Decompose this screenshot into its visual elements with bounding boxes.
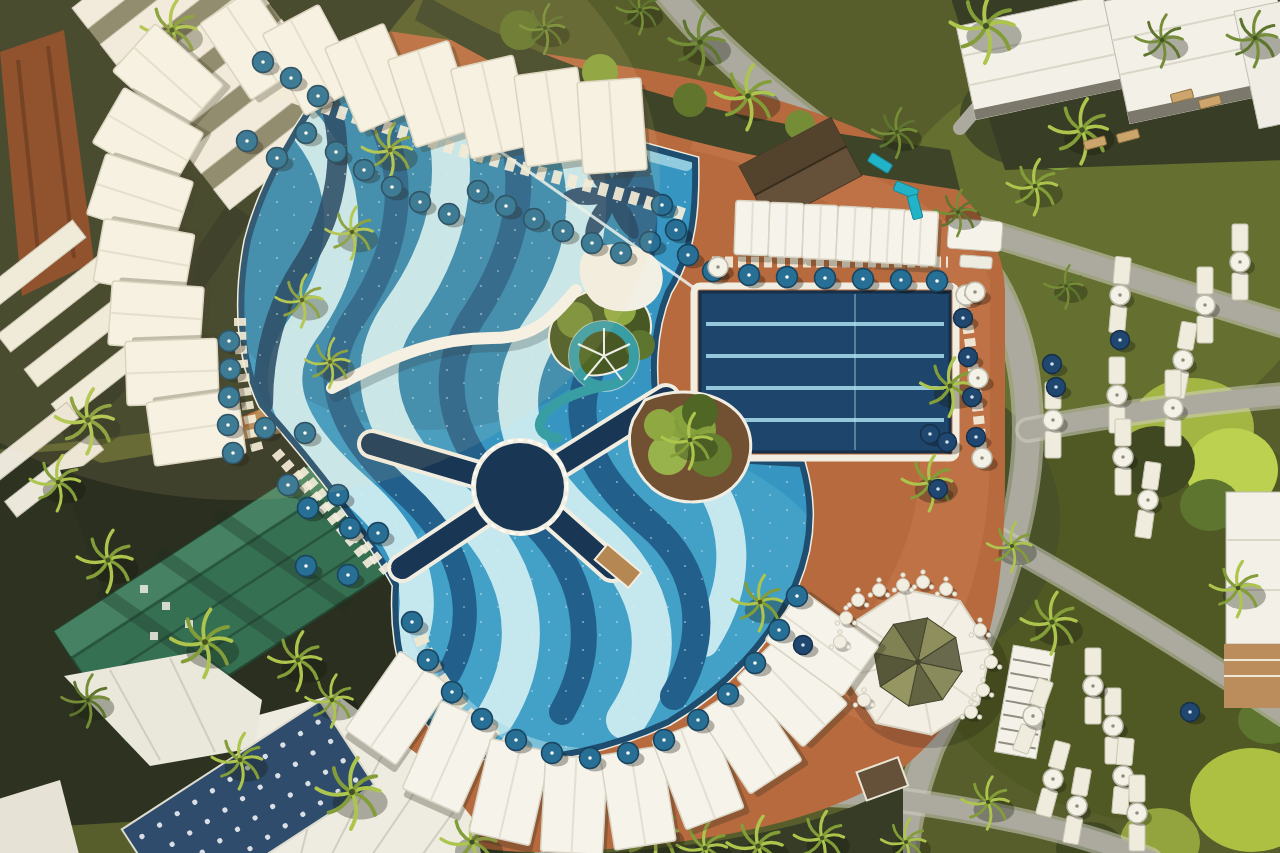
palm-trunk-top <box>300 298 304 302</box>
chair <box>864 603 869 608</box>
table-top <box>840 612 853 625</box>
aerial-resort-photo: Aerial top-down view of a tropical resor… <box>0 0 1280 853</box>
chair <box>846 645 851 650</box>
table-top <box>917 576 930 589</box>
palm-trunk-top <box>703 846 708 851</box>
palm-trunk-top <box>330 698 334 702</box>
parasol-pole <box>231 451 235 455</box>
parasol-pole <box>1050 362 1054 366</box>
sun-lounger <box>1109 357 1125 384</box>
table-top <box>852 594 865 607</box>
parasol-pole <box>662 738 666 742</box>
parasol-pole <box>1121 455 1125 459</box>
palm-trunk-top <box>638 8 642 12</box>
parasol-pole <box>418 200 422 204</box>
chair <box>986 633 991 638</box>
palm-trunk-top <box>1160 38 1164 42</box>
sun-lounger <box>1115 419 1131 446</box>
shade-table <box>162 602 170 610</box>
sun-lounger <box>1142 461 1162 490</box>
parasol-pole <box>336 493 340 497</box>
table-top <box>974 624 987 637</box>
parasol-pole <box>476 189 480 193</box>
sun-lounger <box>1045 431 1061 458</box>
chair <box>838 630 843 635</box>
parasol-pole <box>785 275 789 279</box>
chair <box>885 593 890 598</box>
parasol-pole <box>410 620 414 624</box>
parasol-pole <box>426 658 430 662</box>
sun-lounger <box>1115 468 1131 495</box>
palm-trunk-top <box>328 360 332 364</box>
sun-lounger <box>1197 267 1213 294</box>
chair <box>912 585 917 590</box>
palm-trunk-top <box>983 23 989 29</box>
parasol-pole <box>1111 724 1115 728</box>
parasol-pole <box>686 253 690 257</box>
chair <box>977 715 982 720</box>
palm-trunk-top <box>758 600 763 605</box>
parasol-pole <box>716 265 720 269</box>
parasol-pole <box>1051 418 1055 422</box>
parasol-pole <box>514 738 518 742</box>
parasol-pole <box>316 94 320 98</box>
parasol-pole <box>304 131 308 135</box>
palm-trunk-top <box>202 639 208 645</box>
table-top <box>985 656 998 669</box>
parasol-pole <box>801 643 805 647</box>
palm-trunk-top <box>745 93 750 98</box>
chair <box>852 621 857 626</box>
parasol-pole <box>376 531 380 535</box>
palm-trunk-top <box>86 698 90 702</box>
chair <box>868 593 873 598</box>
chair <box>952 592 957 597</box>
parasol-pole <box>263 426 267 430</box>
parasol-pole <box>823 276 827 280</box>
palm-trunk-top <box>755 843 760 848</box>
sun-lounger <box>1165 419 1181 446</box>
parasol-pole <box>275 156 279 160</box>
parasol-pole <box>980 456 984 460</box>
chair <box>997 665 1002 670</box>
parasol-pole <box>726 692 730 696</box>
chair <box>844 606 849 611</box>
parasol-pole <box>1091 684 1095 688</box>
table-top <box>834 636 847 649</box>
palm-trunk-top <box>895 130 899 134</box>
palm-trunk-top <box>543 26 547 30</box>
sun-lounger <box>1197 316 1213 343</box>
parasol-pole <box>1238 260 1242 264</box>
parasol-pole <box>561 229 565 233</box>
parasol-pole <box>626 751 630 755</box>
parasol-pole <box>346 573 350 577</box>
palm-trunk-top <box>388 148 393 153</box>
parasol-pole <box>648 240 652 244</box>
palm-trunk-top <box>1253 36 1258 41</box>
palm-trunk-top <box>688 438 693 443</box>
table-top <box>897 579 910 592</box>
parasol-pole <box>1115 393 1119 397</box>
chair <box>901 573 906 578</box>
chair <box>929 585 934 590</box>
chair <box>870 703 875 708</box>
palm-trunk-top <box>1010 544 1014 548</box>
parasol-pole <box>226 423 230 427</box>
parasol-pole <box>304 564 308 568</box>
sun-lounger <box>1085 697 1101 724</box>
parasol-pole <box>928 432 932 436</box>
chair <box>892 588 897 593</box>
parasol-pole <box>286 483 290 487</box>
parasol-pole <box>245 139 249 143</box>
palm-trunk-top <box>820 836 825 841</box>
parasol-pole <box>777 628 781 632</box>
hub-island[interactable] <box>476 443 564 531</box>
parasol-pole <box>334 150 338 154</box>
shade-canopy <box>577 78 652 182</box>
palm-trunk-top <box>469 839 474 844</box>
chair <box>960 715 965 720</box>
chair <box>853 703 858 708</box>
sun-lounger <box>1129 824 1145 851</box>
palm-trunk-top <box>349 789 355 795</box>
table-top <box>873 584 886 597</box>
parasol-pole <box>390 185 394 189</box>
sun-lounger <box>1165 370 1181 397</box>
shade-table <box>150 632 158 640</box>
palm-trunk-top <box>948 384 953 389</box>
resort-scene: Aerial top-down view of a tropical resor… <box>0 0 1280 853</box>
chair <box>972 693 977 698</box>
sun-lounger <box>1135 510 1155 539</box>
parasol-pole <box>1188 710 1192 714</box>
sun-lounger <box>1085 648 1101 675</box>
palm-trunk-top <box>986 800 990 804</box>
parasol-pole <box>590 241 594 245</box>
parasol-pole <box>532 217 536 221</box>
parasol-pole <box>550 751 554 755</box>
villa-roof <box>1226 492 1280 644</box>
parasol-pole <box>970 395 974 399</box>
parasol-pole <box>961 316 965 320</box>
chair <box>921 570 926 575</box>
palm-trunk-top <box>296 658 301 663</box>
sun-lounger <box>1113 256 1131 284</box>
palm-trunk-top <box>1064 284 1068 288</box>
parasol-pole <box>660 203 664 207</box>
chair <box>989 650 994 655</box>
palm-trunk-top <box>56 480 61 485</box>
palm-trunk-top <box>956 210 960 214</box>
table-top <box>858 694 871 707</box>
palm-trunk-top <box>1033 184 1038 189</box>
parasol-pole <box>976 376 980 380</box>
parasol-pole <box>227 395 231 399</box>
palm-trunk-top <box>1236 586 1241 591</box>
parasol-pole <box>936 487 940 491</box>
parasol-pole <box>966 355 970 359</box>
palm-trunk-top <box>904 840 908 844</box>
parasol-pole <box>348 526 352 530</box>
chair <box>835 621 840 626</box>
parasol-pole <box>303 431 307 435</box>
palm-trunk-top <box>105 557 110 562</box>
parasol-pole <box>899 278 903 282</box>
chair <box>877 578 882 583</box>
parasol-pole <box>861 277 865 281</box>
parasol-pole <box>504 204 508 208</box>
chair <box>944 577 949 582</box>
parasol-pole <box>588 756 592 760</box>
parasol-pole <box>228 367 232 371</box>
sun-lounger <box>1116 737 1134 765</box>
table-top <box>977 684 990 697</box>
palm-trunk-top <box>1049 619 1054 624</box>
chair <box>980 665 985 670</box>
table-top <box>940 583 953 596</box>
parasol-pole <box>1054 385 1058 389</box>
chair <box>856 588 861 593</box>
parasol-pole <box>447 212 451 216</box>
chair <box>829 645 834 650</box>
sun-lounger <box>1129 775 1145 802</box>
palm-trunk-top <box>238 758 243 763</box>
palm-trunk-top <box>85 417 90 422</box>
parasol-pole <box>362 168 366 172</box>
parasol-pole <box>696 718 700 722</box>
parasol-pole <box>945 440 949 444</box>
chair <box>969 700 974 705</box>
palm-trunk-top <box>350 230 354 234</box>
sun-lounger <box>1109 305 1127 333</box>
parasol-pole <box>619 251 623 255</box>
sun-lounger <box>1232 273 1248 300</box>
palm-trunk-top <box>697 39 702 44</box>
parasol-pole <box>747 273 751 277</box>
chair <box>969 633 974 638</box>
parasol-pole <box>306 506 310 510</box>
chair <box>862 688 867 693</box>
palm-trunk-top <box>1079 127 1084 132</box>
parasol-pole <box>795 594 799 598</box>
parasol-pole <box>1135 811 1139 815</box>
table-top <box>965 706 978 719</box>
parasol-pole <box>480 717 484 721</box>
parasol-pole <box>450 690 454 694</box>
parasol-pole <box>1171 406 1175 410</box>
parasol-pole <box>973 290 977 294</box>
parasol-pole <box>935 279 939 283</box>
chair <box>935 592 940 597</box>
chair <box>989 693 994 698</box>
chair <box>981 678 986 683</box>
chair <box>978 618 983 623</box>
sun-lounger <box>1232 224 1248 251</box>
parasol-pole <box>753 661 757 665</box>
parasol-pole <box>227 339 231 343</box>
parasol-pole <box>674 228 678 232</box>
parasol-pole <box>1203 303 1207 307</box>
parasol-pole <box>261 60 265 64</box>
parasol-pole <box>974 435 978 439</box>
parasol-pole <box>1118 338 1122 342</box>
shade-table <box>140 585 148 593</box>
hedge-bush <box>673 83 707 117</box>
parasol-pole <box>289 76 293 80</box>
shade-canopy <box>901 210 942 273</box>
